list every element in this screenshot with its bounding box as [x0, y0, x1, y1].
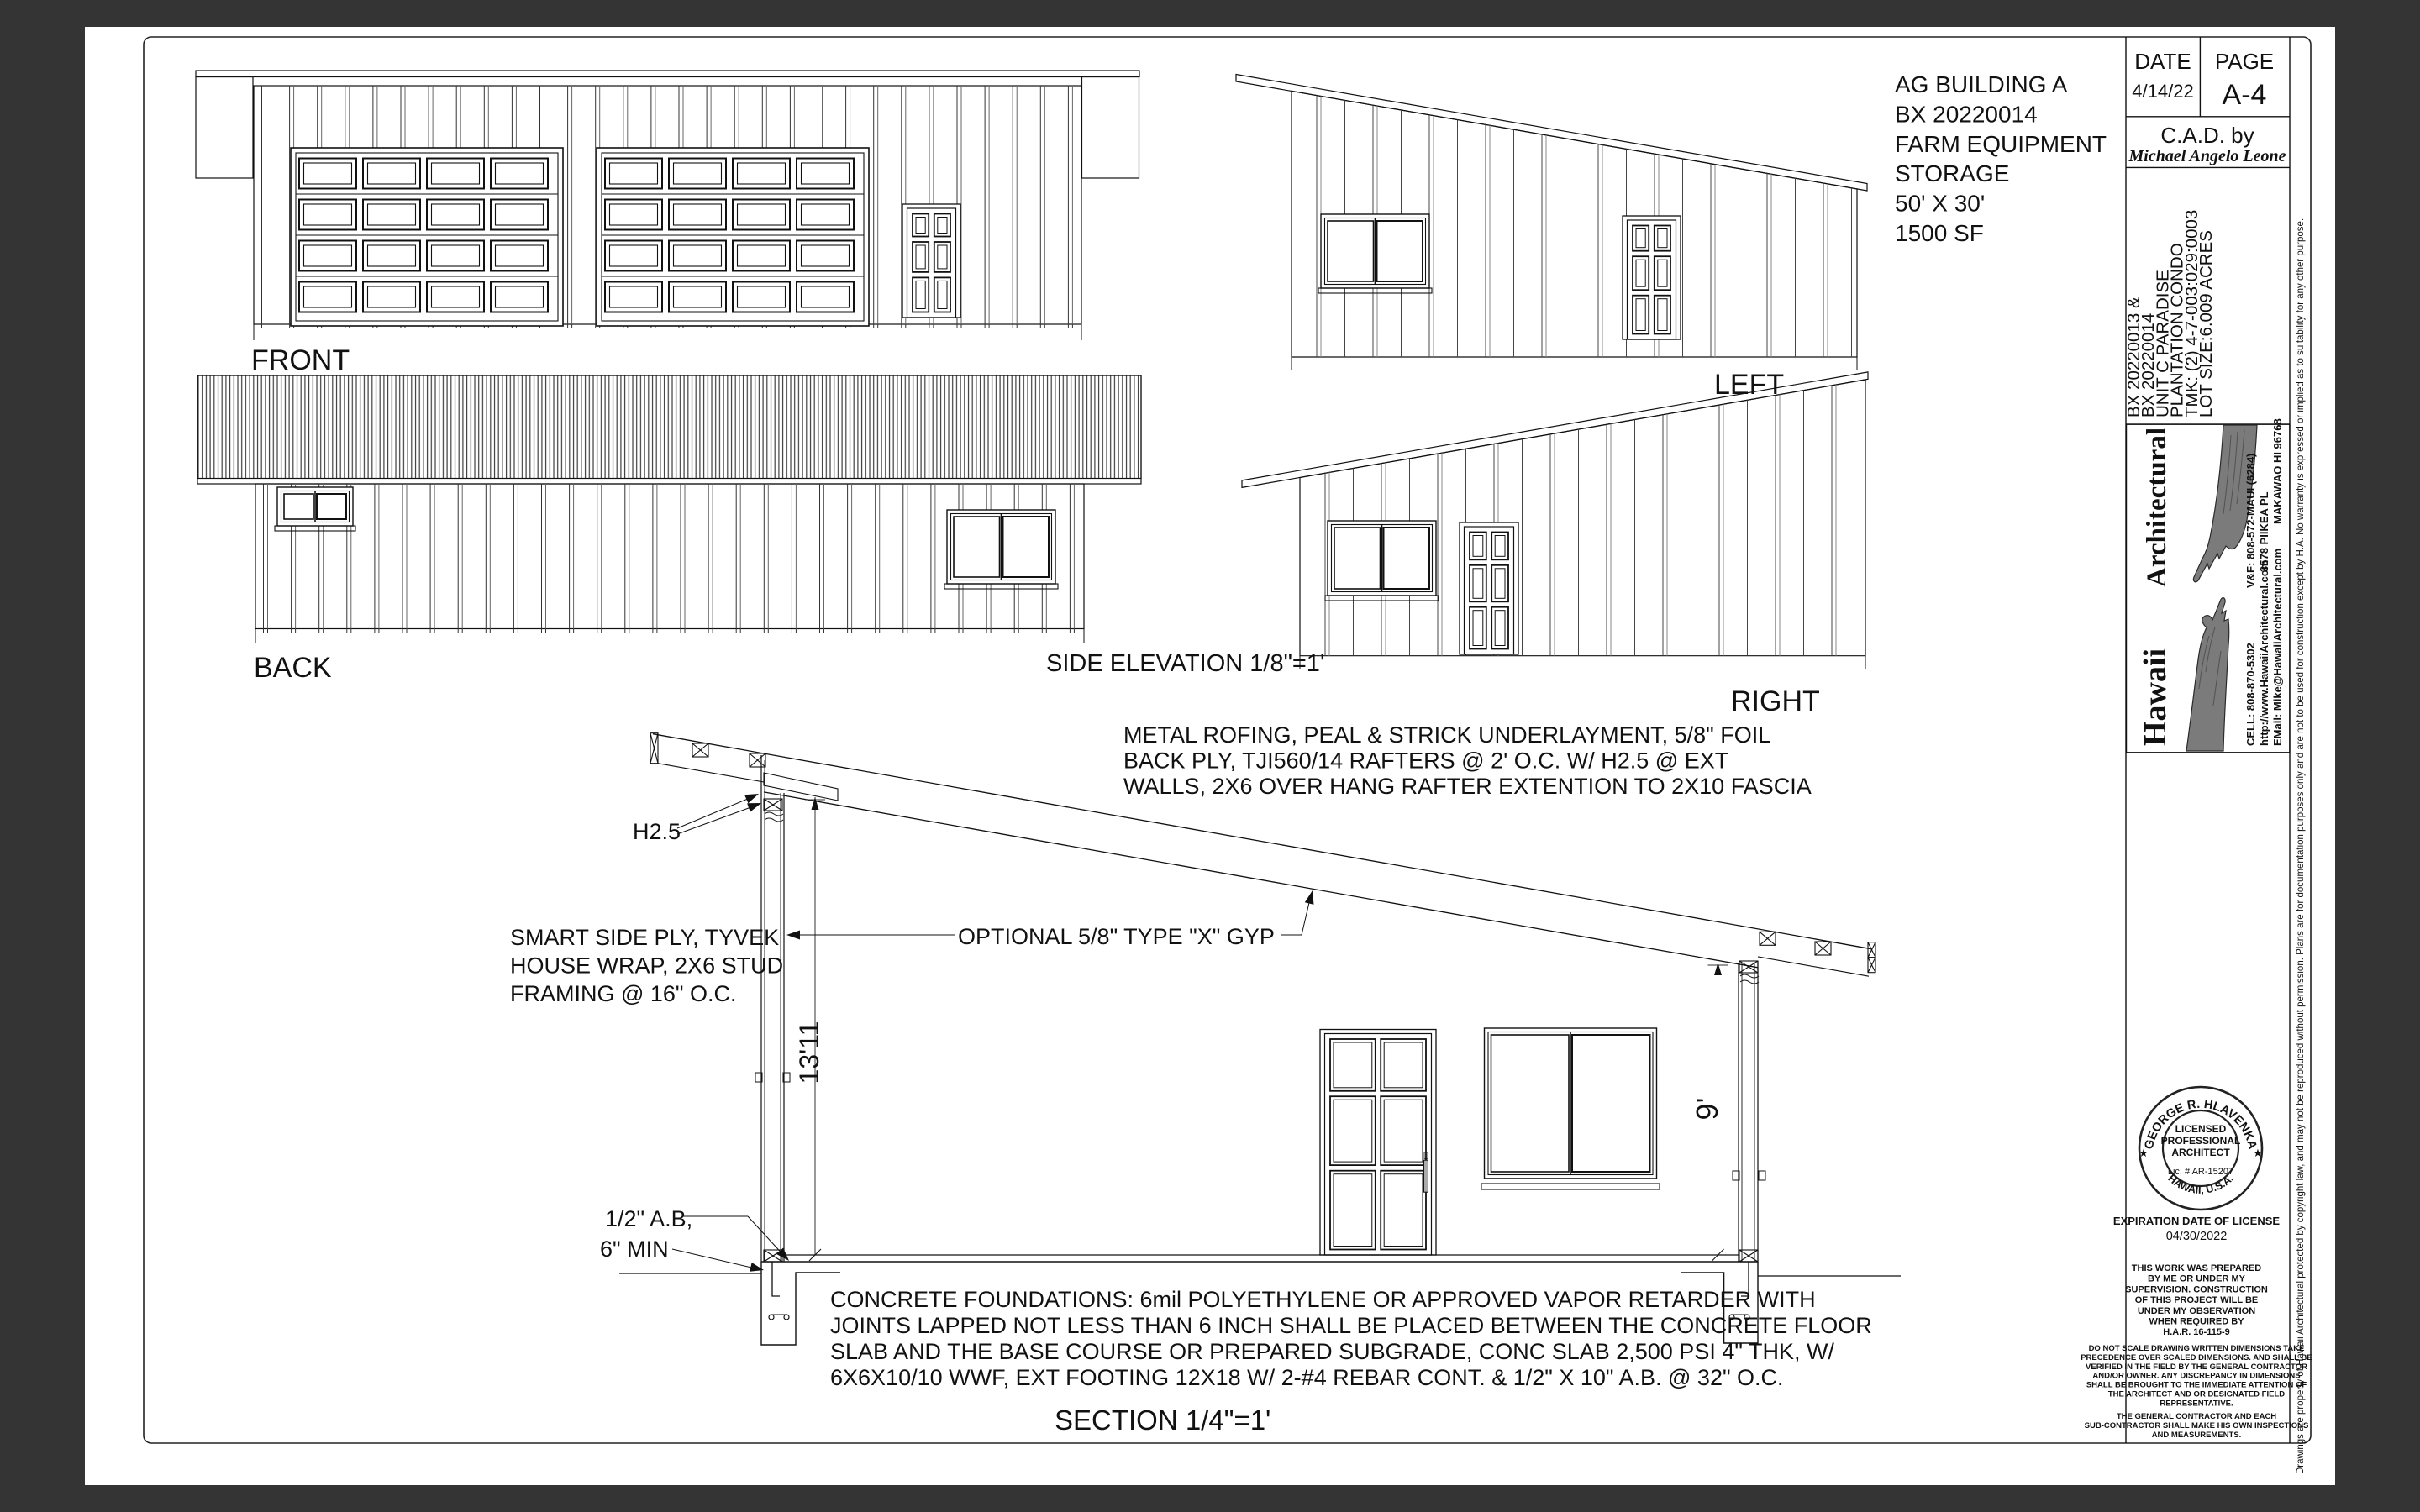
- svg-text:CONCRETE FOUNDATIONS: 6mil POL: CONCRETE FOUNDATIONS: 6mil POLYETHYLENE …: [830, 1287, 1816, 1312]
- svg-text:OF THIS PROJECT WILL BE: OF THIS PROJECT WILL BE: [2135, 1295, 2258, 1305]
- svg-text:THE ARCHITECT AND OR DESIGNATE: THE ARCHITECT AND OR DESIGNATED FIELD: [2108, 1390, 2285, 1399]
- svg-text:THE GENERAL CONTRACTOR AND EAC: THE GENERAL CONTRACTOR AND EACH: [2117, 1412, 2276, 1421]
- svg-text:BACK PLY, TJI560/14 RAFTERS @: BACK PLY, TJI560/14 RAFTERS @ 2' O.C. W/…: [1123, 748, 1728, 774]
- svg-text:http://www.HawaiiArchitectural: http://www.HawaiiArchitectural.com: [2258, 560, 2270, 746]
- svg-text:AG BUILDING A: AG BUILDING A: [1895, 71, 2068, 97]
- svg-text:PRECEDENCE OVER SCALED DIMENSI: PRECEDENCE OVER SCALED DIMENSIONS. AND S…: [2081, 1353, 2312, 1362]
- svg-text:C.A.D. by: C.A.D. by: [2160, 123, 2254, 148]
- svg-text:Architectural: Architectural: [2142, 428, 2172, 587]
- svg-text:PROFESSIONAL: PROFESSIONAL: [2161, 1135, 2241, 1147]
- svg-text:METAL ROFING, PEAL & STRICK UN: METAL ROFING, PEAL & STRICK UNDERLAYMENT…: [1123, 722, 1770, 748]
- svg-text:CELL: 808-870-5302: CELL: 808-870-5302: [2244, 643, 2257, 746]
- svg-text:SMART SIDE PLY, TYVEK: SMART SIDE PLY, TYVEK: [510, 925, 779, 950]
- svg-text:Lic. # AR-15207: Lic. # AR-15207: [2168, 1167, 2233, 1177]
- svg-text:Hawaii: Hawaii: [2138, 648, 2173, 746]
- svg-text:RIGHT: RIGHT: [1731, 685, 1820, 717]
- svg-text:SHALL BE BROUGHT TO THE IMMEDI: SHALL BE BROUGHT TO THE IMMEDIATE ATTENT…: [2086, 1381, 2307, 1390]
- svg-text:UNDER MY OBSERVATION: UNDER MY OBSERVATION: [2138, 1306, 2255, 1316]
- svg-text:DO NOT SCALE DRAWING WRITTEN: DO NOT SCALE DRAWING WRITTEN DIMENSIONS …: [2089, 1344, 2305, 1353]
- svg-text:04/30/2022: 04/30/2022: [2166, 1230, 2228, 1243]
- svg-text:OPTIONAL 5/8" TYPE "X" GYP: OPTIONAL 5/8" TYPE "X" GYP: [958, 924, 1275, 949]
- svg-text:1/2" A.B,: 1/2" A.B,: [605, 1206, 692, 1231]
- svg-text:ARCHITECT: ARCHITECT: [2171, 1147, 2230, 1158]
- svg-text:VERIFIED IN THE FIELD BY THE G: VERIFIED IN THE FIELD BY THE GENERAL CON…: [2086, 1362, 2307, 1372]
- svg-text:LOT SIZE:6.009 ACRES: LOT SIZE:6.009 ACRES: [2196, 230, 2216, 417]
- svg-text:FRAMING @ 16" O.C.: FRAMING @ 16" O.C.: [510, 981, 737, 1006]
- svg-text:SUPERVISION. CONSTRUCTION: SUPERVISION. CONSTRUCTION: [2125, 1284, 2268, 1294]
- svg-text:Drawings are property of Hawai: Drawings are property of Hawaii Architec…: [2296, 218, 2306, 1474]
- svg-text:AND MEASUREMENTS.: AND MEASUREMENTS.: [2152, 1431, 2242, 1440]
- svg-text:★: ★: [2139, 1147, 2149, 1159]
- svg-text:6X6X10/10 WWF, EXT FOOTING 12X: 6X6X10/10 WWF, EXT FOOTING 12X18 W/ 2-#4…: [830, 1365, 1784, 1390]
- svg-text:H2.5: H2.5: [633, 819, 681, 844]
- svg-text:FRONT: FRONT: [251, 344, 350, 376]
- svg-text:A-4: A-4: [2223, 79, 2267, 111]
- svg-text:HOUSE WRAP, 2X6 STUD: HOUSE WRAP, 2X6 STUD: [510, 953, 783, 979]
- svg-text:SIDE ELEVATION 1/8"=1': SIDE ELEVATION 1/8"=1': [1046, 650, 1324, 677]
- svg-text:MAKAWAO HI 96768: MAKAWAO HI 96768: [2271, 418, 2284, 524]
- svg-text:13'11: 13'11: [794, 1021, 824, 1084]
- svg-text:9': 9': [1690, 1098, 1724, 1121]
- svg-text:FARM EQUIPMENT: FARM EQUIPMENT: [1895, 131, 2107, 157]
- svg-text:★: ★: [2253, 1147, 2263, 1159]
- svg-text:6" MIN: 6" MIN: [600, 1236, 669, 1262]
- svg-text:3578 PIIKEA PL: 3578 PIIKEA PL: [2258, 491, 2270, 572]
- svg-text:BX 20220014: BX 20220014: [1895, 101, 2038, 127]
- svg-text:Michael Angelo Leone: Michael Angelo Leone: [2128, 147, 2286, 165]
- svg-text:SUB-CONTRACTOR SHALL MAKE HIS: SUB-CONTRACTOR SHALL MAKE HIS OWN INSPEC…: [2085, 1421, 2309, 1431]
- svg-text:4/14/22: 4/14/22: [2132, 81, 2193, 102]
- svg-text:PAGE: PAGE: [2215, 49, 2274, 74]
- svg-text:AND/OR OWNER. ANY DISCREPANCY: AND/OR OWNER. ANY DISCREPANCY IN DIMENSI…: [2092, 1372, 2300, 1381]
- svg-text:V&F: 808-572-MAUI (6284): V&F: 808-572-MAUI (6284): [2244, 454, 2257, 588]
- svg-text:LICENSED: LICENSED: [2175, 1123, 2227, 1135]
- svg-text:WHEN REQUIRED BY: WHEN REQUIRED BY: [2149, 1317, 2244, 1327]
- svg-text:EXPIRATION DATE OF LICENSE: EXPIRATION DATE OF LICENSE: [2113, 1215, 2280, 1227]
- svg-text:EMail: Mike@HawaiiArchitectura: EMail: Mike@HawaiiArchitectural.com: [2271, 549, 2284, 746]
- svg-text:SECTION 1/4"=1': SECTION 1/4"=1': [1055, 1404, 1270, 1436]
- svg-text:STORAGE: STORAGE: [1895, 160, 2009, 186]
- svg-text:BY ME OR UNDER MY: BY ME OR UNDER MY: [2148, 1274, 2246, 1284]
- svg-text:WALLS, 2X6 OVER HANG RAFTER EX: WALLS, 2X6 OVER HANG RAFTER EXTENTION TO…: [1123, 774, 1812, 799]
- svg-text:50' X 30': 50' X 30': [1895, 191, 1985, 217]
- svg-text:THIS WORK WAS PREPARED: THIS WORK WAS PREPARED: [2132, 1263, 2261, 1273]
- svg-text:1500 SF: 1500 SF: [1895, 220, 1984, 246]
- svg-text:SLAB AND THE BASE COURSE OR PR: SLAB AND THE BASE COURSE OR PREPARED SUB…: [830, 1339, 1834, 1364]
- svg-text:H.A.R. 16-115-9: H.A.R. 16-115-9: [2163, 1327, 2229, 1337]
- svg-text:REPRESENTATIVE.: REPRESENTATIVE.: [2160, 1399, 2233, 1408]
- svg-text:JOINTS LAPPED NOT LESS THAN 6: JOINTS LAPPED NOT LESS THAN 6 INCH SHALL…: [830, 1313, 1872, 1338]
- svg-text:BACK: BACK: [254, 652, 332, 684]
- svg-text:DATE: DATE: [2134, 49, 2191, 74]
